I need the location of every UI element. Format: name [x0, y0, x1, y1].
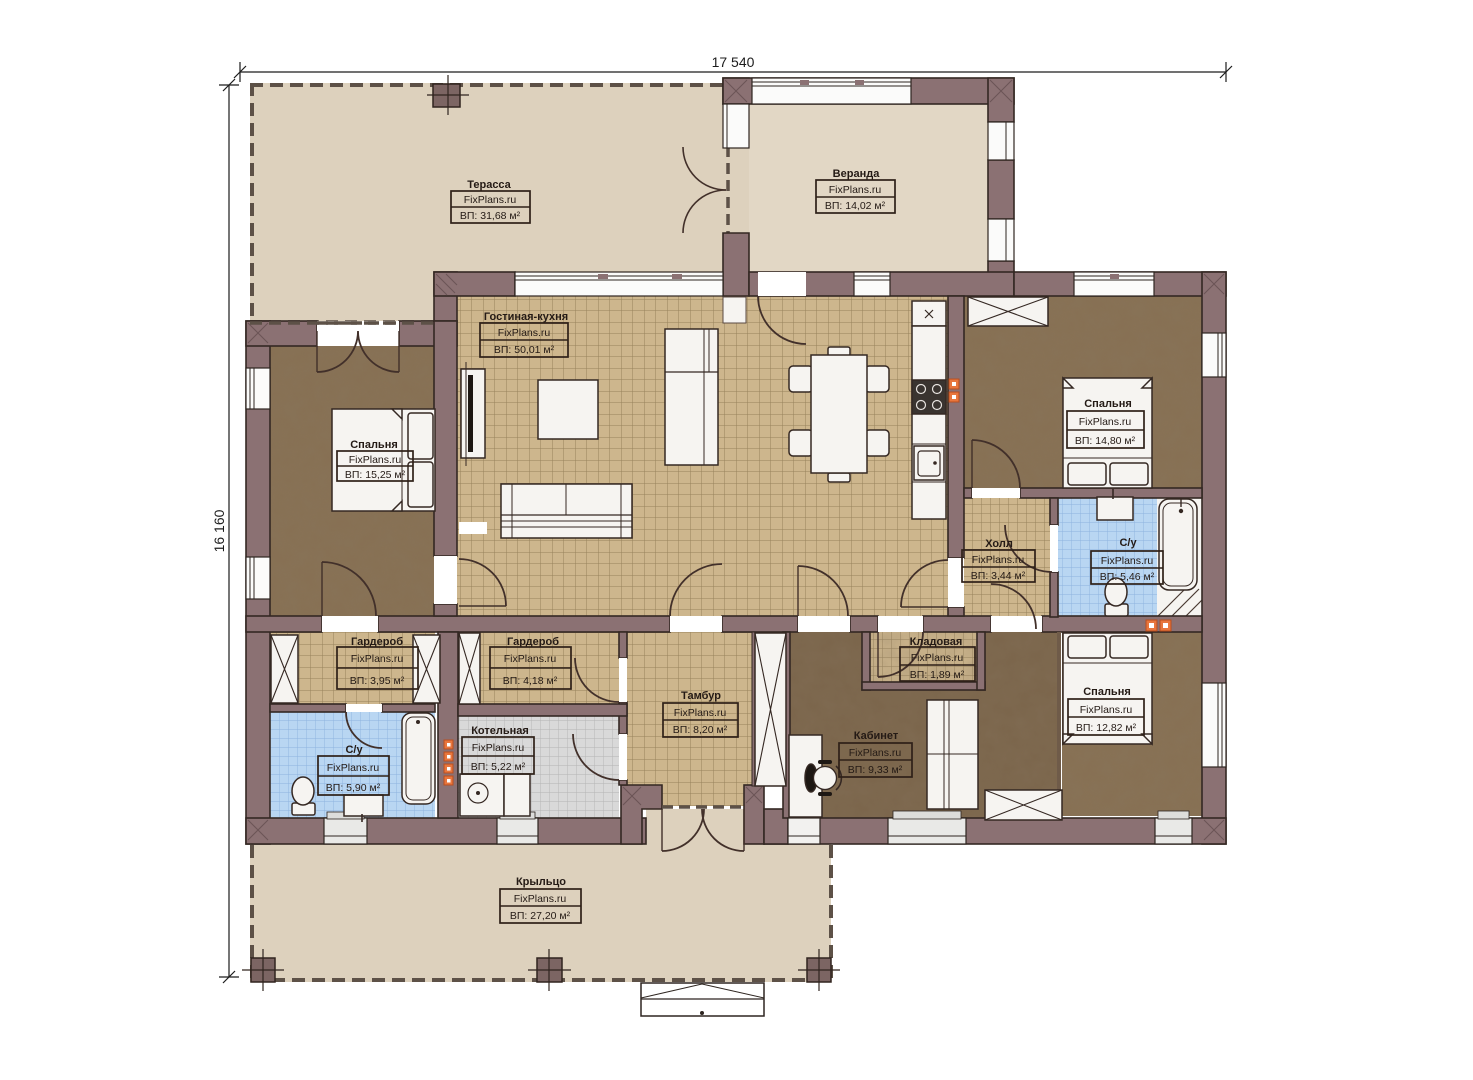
svg-text:ВП: 15,25 м²: ВП: 15,25 м² [345, 469, 406, 481]
svg-text:ВП: 31,68 м²: ВП: 31,68 м² [460, 210, 521, 222]
svg-text:FixPlans.ru: FixPlans.ru [674, 707, 727, 719]
svg-text:Терасса: Терасса [467, 179, 511, 191]
svg-text:ВП: 4,18 м²: ВП: 4,18 м² [503, 675, 558, 687]
svg-text:ВП: 3,44 м²: ВП: 3,44 м² [971, 570, 1026, 582]
svg-text:ВП: 27,20 м²: ВП: 27,20 м² [510, 910, 571, 922]
svg-text:FixPlans.ru: FixPlans.ru [829, 184, 882, 196]
svg-text:FixPlans.ru: FixPlans.ru [911, 652, 964, 664]
svg-text:FixPlans.ru: FixPlans.ru [849, 747, 902, 759]
svg-text:Спальня: Спальня [350, 439, 398, 451]
svg-text:FixPlans.ru: FixPlans.ru [1079, 416, 1132, 428]
svg-text:FixPlans.ru: FixPlans.ru [349, 454, 402, 466]
svg-text:Веранда: Веранда [833, 168, 881, 180]
svg-text:FixPlans.ru: FixPlans.ru [504, 653, 557, 665]
svg-text:FixPlans.ru: FixPlans.ru [327, 762, 380, 774]
svg-text:FixPlans.ru: FixPlans.ru [472, 742, 525, 754]
svg-text:Гостиная-кухня: Гостиная-кухня [484, 311, 568, 323]
svg-text:ВП: 12,82 м²: ВП: 12,82 м² [1076, 722, 1137, 734]
svg-text:17 540: 17 540 [712, 54, 755, 70]
svg-text:Кабинет: Кабинет [854, 730, 899, 742]
svg-text:ВП: 3,95 м²: ВП: 3,95 м² [350, 675, 405, 687]
svg-text:FixPlans.ru: FixPlans.ru [464, 194, 517, 206]
svg-text:ВП: 5,22 м²: ВП: 5,22 м² [471, 761, 526, 773]
svg-text:Крыльцо: Крыльцо [516, 876, 566, 888]
svg-text:Котельная: Котельная [471, 725, 529, 737]
svg-text:ВП: 8,20 м²: ВП: 8,20 м² [673, 724, 728, 736]
svg-text:ВП: 9,33 м²: ВП: 9,33 м² [848, 764, 903, 776]
svg-text:Тамбур: Тамбур [681, 690, 721, 702]
svg-text:FixPlans.ru: FixPlans.ru [351, 653, 404, 665]
svg-text:FixPlans.ru: FixPlans.ru [972, 554, 1025, 566]
svg-text:FixPlans.ru: FixPlans.ru [498, 327, 551, 339]
svg-text:Спальня: Спальня [1083, 686, 1131, 698]
svg-text:С/у: С/у [1119, 537, 1137, 549]
svg-text:FixPlans.ru: FixPlans.ru [514, 893, 567, 905]
svg-text:ВП: 14,80 м²: ВП: 14,80 м² [1075, 435, 1136, 447]
svg-text:16 160: 16 160 [211, 509, 227, 552]
svg-text:FixPlans.ru: FixPlans.ru [1101, 555, 1154, 567]
svg-text:Спальня: Спальня [1084, 398, 1132, 410]
svg-text:FixPlans.ru: FixPlans.ru [1080, 704, 1133, 716]
svg-text:ВП: 1,89 м²: ВП: 1,89 м² [910, 669, 965, 681]
svg-text:С/у: С/у [345, 744, 363, 756]
svg-text:ВП: 14,02 м²: ВП: 14,02 м² [825, 200, 886, 212]
svg-text:ВП: 5,90 м²: ВП: 5,90 м² [326, 782, 381, 794]
svg-text:Холл: Холл [985, 538, 1013, 550]
svg-text:ВП: 5,46 м²: ВП: 5,46 м² [1100, 571, 1155, 583]
svg-text:ВП: 50,01 м²: ВП: 50,01 м² [494, 344, 555, 356]
